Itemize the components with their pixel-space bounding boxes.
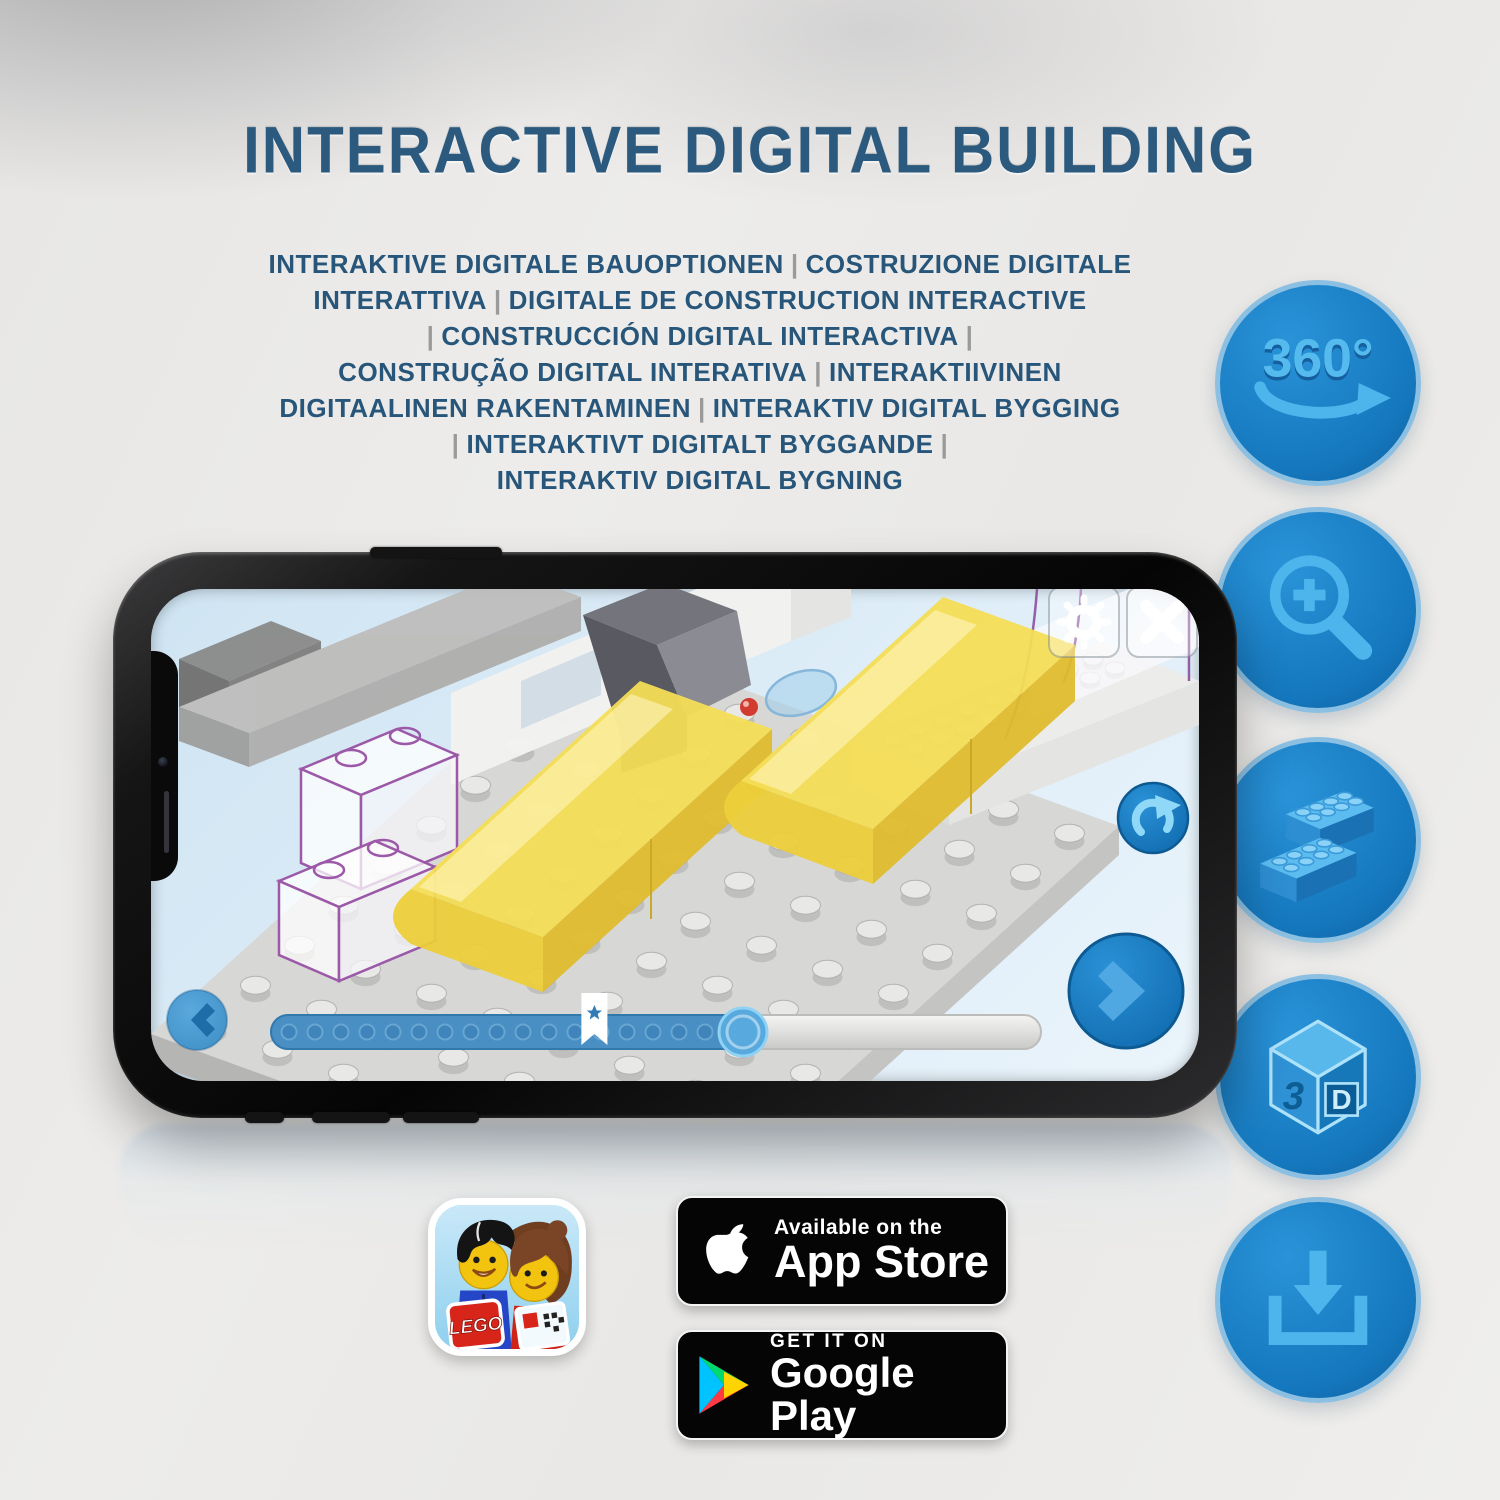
lego-app-icon[interactable]: LEGO [428, 1198, 586, 1356]
phone-volume-down-button [403, 1112, 479, 1123]
app-store-badge[interactable]: Available on the App Store [676, 1196, 1008, 1306]
page-title: INTERACTIVE DIGITAL BUILDING [0, 112, 1500, 188]
apple-icon [678, 1220, 774, 1282]
zoom-in-icon [1243, 535, 1393, 685]
google-play-badge[interactable]: GET IT ON Google Play [676, 1330, 1008, 1440]
phone-mockup [113, 552, 1237, 1118]
red-accent-highlight [743, 701, 749, 707]
svg-text:360°: 360° [1263, 330, 1374, 389]
front-camera [158, 757, 168, 767]
subtitle-translations: INTERAKTIVE DIGITALE BAUOPTIONEN|COSTRUZ… [95, 246, 1305, 498]
close-button[interactable] [1127, 589, 1197, 657]
app-store-name: App Store [774, 1239, 989, 1285]
google-play-name: Google Play [770, 1352, 1006, 1438]
brick-icon [1243, 765, 1393, 915]
phone-notch [151, 651, 178, 881]
3d-cube-icon: 3 D [1243, 1002, 1393, 1152]
instruction-card [515, 1302, 569, 1349]
phone-volume-up-button [312, 1112, 390, 1123]
girl-hair-bun [548, 1220, 568, 1240]
feature-3d-view: 3 D [1215, 974, 1421, 1180]
step-dots [282, 1025, 713, 1040]
feature-bricks [1215, 737, 1421, 943]
google-play-icon [678, 1355, 770, 1415]
settings-button[interactable] [1049, 589, 1119, 657]
feature-download [1215, 1197, 1421, 1403]
lego-3d-build-scene[interactable] [151, 589, 1199, 1081]
phone-power-button [370, 547, 502, 558]
slider-handle[interactable] [719, 1008, 767, 1056]
red-accent-piece [740, 698, 758, 716]
lego-logo: LEGO [447, 1299, 505, 1349]
rotate-360-icon: 360° 360° [1243, 308, 1393, 458]
svg-text:D: D [1332, 1084, 1352, 1115]
next-step-button[interactable] [1069, 934, 1183, 1048]
phone-reflection [118, 1124, 1232, 1259]
feature-zoom [1215, 507, 1421, 713]
download-icon [1243, 1225, 1393, 1375]
app-screen [151, 589, 1199, 1081]
svg-text:3: 3 [1283, 1075, 1305, 1118]
feature-360-rotation: 360° 360° [1215, 280, 1421, 486]
rotate-view-button[interactable] [1118, 783, 1188, 853]
earpiece-speaker [164, 791, 169, 853]
previous-step-button[interactable] [167, 990, 227, 1050]
phone-mute-switch [245, 1112, 284, 1123]
